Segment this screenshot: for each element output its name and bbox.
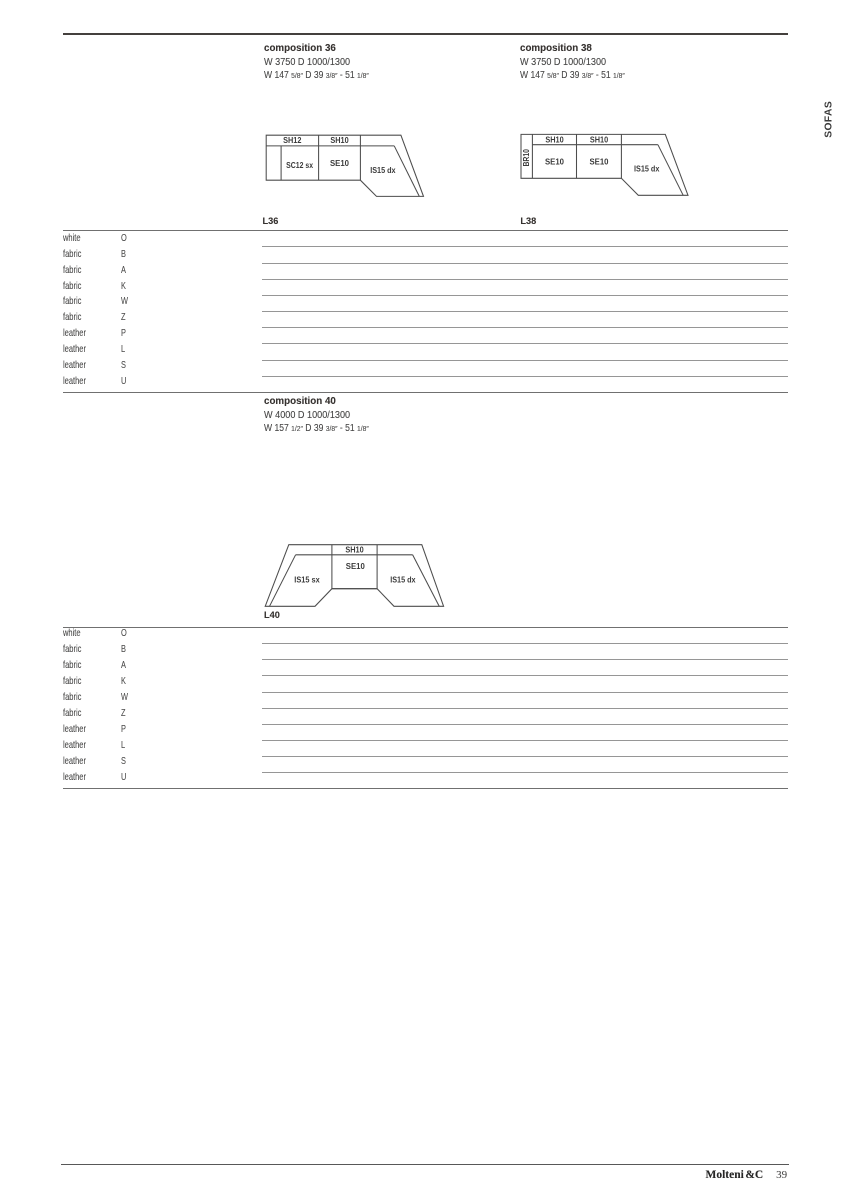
svg-text:IS15 dx: IS15 dx bbox=[634, 165, 660, 174]
svg-text:SE10: SE10 bbox=[330, 159, 350, 168]
svg-text:SE10: SE10 bbox=[590, 157, 610, 166]
svg-text:SH10: SH10 bbox=[330, 136, 349, 145]
svg-text:SH10: SH10 bbox=[545, 135, 564, 144]
svg-text:IS15 dx: IS15 dx bbox=[370, 166, 396, 175]
svg-text:SH12: SH12 bbox=[283, 136, 302, 145]
svg-text:SE10: SE10 bbox=[545, 157, 565, 166]
svg-text:BR10: BR10 bbox=[522, 149, 531, 167]
svg-text:SH10: SH10 bbox=[590, 135, 609, 144]
svg-text:SE10: SE10 bbox=[346, 562, 366, 571]
svg-text:SH10: SH10 bbox=[345, 546, 364, 555]
svg-text:SC12 sx: SC12 sx bbox=[286, 161, 313, 170]
svg-text:SOFAS: SOFAS bbox=[823, 101, 834, 138]
svg-text:IS15 sx: IS15 sx bbox=[294, 576, 320, 585]
svg-text:IS15 dx: IS15 dx bbox=[390, 576, 416, 585]
